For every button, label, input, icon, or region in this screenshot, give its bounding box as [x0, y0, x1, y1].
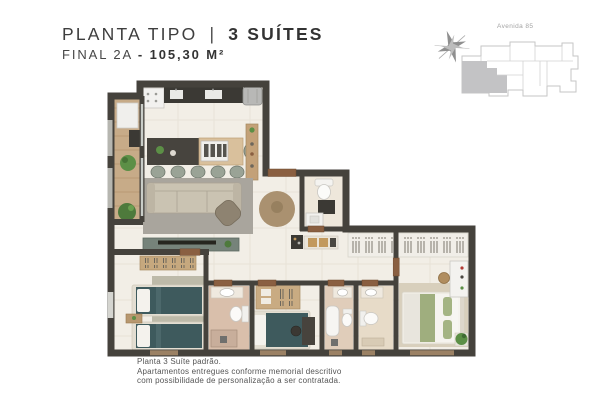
suite-2-door	[258, 280, 276, 286]
hall-sideboard	[291, 235, 338, 249]
bath-1-toilet-tank	[242, 306, 249, 322]
lavabo-toilet	[318, 185, 331, 200]
bath-3-toilet	[364, 313, 378, 325]
twin-bed-2	[132, 322, 206, 350]
living-room	[143, 178, 253, 251]
bath-2-toilet	[342, 314, 352, 327]
bathroom-3	[359, 286, 393, 350]
lavabo-bathroom	[305, 176, 343, 227]
kitchen-island	[147, 138, 243, 165]
master-door	[393, 258, 399, 276]
master-plant	[455, 333, 468, 346]
bath-2-sink	[338, 289, 348, 296]
bath-3-sink	[366, 289, 377, 296]
twin-bed-1	[132, 285, 206, 316]
lavabo-door	[308, 226, 324, 232]
island-plant	[156, 146, 164, 154]
site-key-plan	[462, 42, 578, 96]
console-plant	[225, 241, 232, 248]
corridor-wardrobe	[348, 233, 468, 257]
bathroom-2	[325, 286, 353, 350]
bath-3-door	[362, 280, 378, 286]
suite-2-wardrobe	[256, 285, 300, 309]
master-desk-chair	[439, 273, 450, 284]
round-table	[271, 201, 283, 213]
fridge	[243, 87, 262, 105]
balcony-bench	[117, 103, 138, 128]
bath-1-toilet	[230, 307, 242, 322]
bath-2-door	[328, 280, 344, 286]
floor-plan-graphic	[0, 0, 612, 410]
apartment-plan	[108, 84, 473, 355]
stove	[142, 88, 164, 108]
tv	[158, 241, 216, 245]
master-desk	[450, 261, 468, 297]
bath-1-sink	[220, 289, 234, 297]
suite-1-door	[180, 249, 200, 256]
bath-3-bench	[362, 338, 384, 346]
balcony-plant-2	[118, 203, 136, 221]
bath-1-door	[214, 280, 232, 286]
dining-nook	[259, 191, 295, 227]
suite-2-desk	[302, 317, 315, 345]
suite-2-stool	[291, 326, 301, 336]
entry-door	[268, 169, 296, 177]
balcony	[111, 96, 142, 224]
floor-plan-page: PLANTA TIPO | 3 SUÍTES FINAL 2A - 105,30…	[0, 0, 612, 410]
balcony-plant-1	[120, 155, 136, 171]
bathroom-1	[209, 286, 249, 350]
bath-2-tub	[326, 306, 339, 336]
lavabo-counter	[318, 200, 335, 214]
suite-2-bed	[252, 311, 310, 349]
